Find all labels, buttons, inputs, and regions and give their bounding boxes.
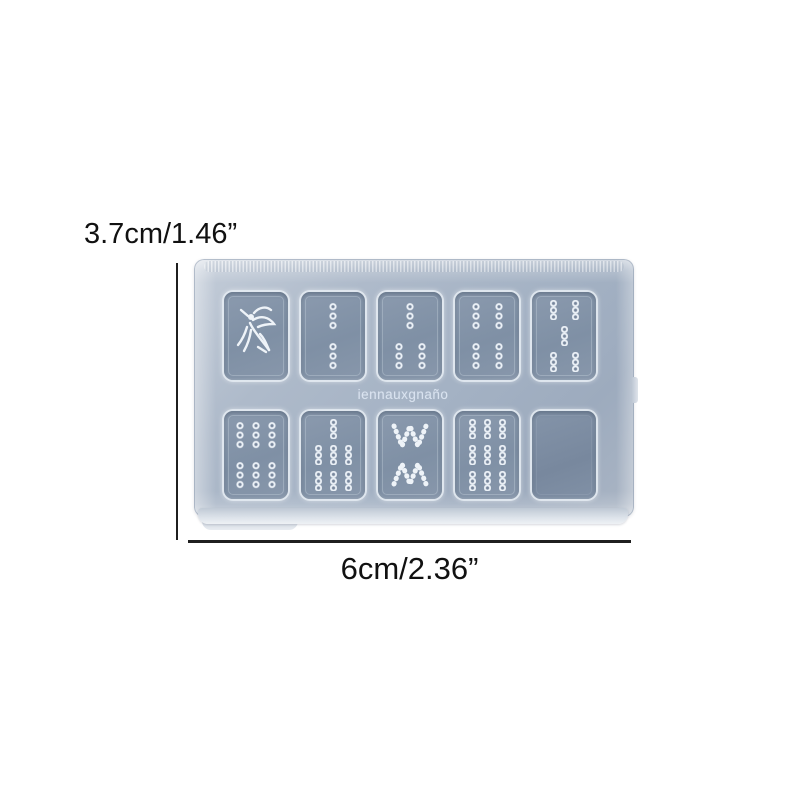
bamboo-stick (236, 421, 244, 449)
bamboo-stick (236, 461, 244, 489)
bamboo-stick-pattern (395, 302, 426, 370)
mold-cavity-7-bamboo (301, 411, 365, 499)
height-dimension-line (176, 263, 178, 540)
mold-foot (202, 518, 298, 530)
mold-cavity-6-bamboo (224, 411, 288, 499)
bamboo-stick (469, 471, 476, 491)
bamboo-stick-pattern (472, 302, 503, 370)
bamboo-stick (469, 419, 476, 439)
mold-cavity-5-bamboo (532, 292, 596, 380)
bamboo-stick (572, 300, 579, 320)
mold-cavity-3-bamboo (378, 292, 442, 380)
bamboo-stick (472, 302, 480, 330)
bamboo-stick (330, 445, 337, 465)
bamboo-stick (330, 471, 337, 491)
height-dimension-label: 3.7cm/1.46” (84, 218, 237, 251)
bamboo-stick (330, 419, 337, 439)
product-image: 3.7cm/1.46” iennauxgnaño 6cm/2.36” (0, 0, 800, 800)
bamboo-stick (484, 445, 491, 465)
bamboo-stick (572, 352, 579, 372)
mold-cavity-row-bottom (224, 411, 596, 499)
mold-cavity-2-bamboo (301, 292, 365, 380)
bamboo-stick (550, 352, 557, 372)
bamboo-stick (561, 326, 568, 346)
mold-cavity-row-top (224, 292, 596, 380)
bamboo-stick-pattern (550, 300, 579, 372)
bamboo-stick (469, 445, 476, 465)
watermark-text: iennauxgnaño (183, 387, 623, 402)
sparrow-bird-icon (233, 303, 279, 369)
mold-cavity-9-bamboo (455, 411, 519, 499)
bamboo-stick (495, 342, 503, 370)
bamboo-stick (395, 342, 403, 370)
width-dimension-label: 6cm/2.36” (188, 551, 631, 587)
bamboo-stick (499, 419, 506, 439)
bamboo-stick-pattern (236, 421, 276, 489)
bamboo-stick (315, 445, 322, 465)
bamboo-stick (499, 445, 506, 465)
eight-bamboo-chevrons-icon (389, 421, 431, 489)
bamboo-stick (406, 302, 414, 330)
mold-cavity-blank-tile (532, 411, 596, 499)
bamboo-stick (484, 471, 491, 491)
bamboo-stick (252, 461, 260, 489)
bamboo-stick (484, 419, 491, 439)
bamboo-stick (268, 461, 276, 489)
bamboo-stick (268, 421, 276, 449)
bamboo-stick (315, 471, 322, 491)
bamboo-stick (472, 342, 480, 370)
bamboo-stick (329, 302, 337, 330)
mold-cavity-8-bamboo (378, 411, 442, 499)
bamboo-stick-pattern (315, 419, 352, 491)
bamboo-stick (495, 302, 503, 330)
width-dimension-line (188, 540, 631, 543)
mold-edge-bump (631, 377, 638, 403)
silicone-mold: iennauxgnaño (194, 259, 634, 517)
mold-cavity-4-bamboo (455, 292, 519, 380)
bamboo-stick (329, 342, 337, 370)
bamboo-stick-pattern (469, 419, 506, 491)
bamboo-stick (345, 471, 352, 491)
bamboo-stick (252, 421, 260, 449)
bamboo-stick-pattern (329, 302, 337, 370)
bamboo-stick (345, 445, 352, 465)
bamboo-stick (550, 300, 557, 320)
bamboo-stick (418, 342, 426, 370)
bamboo-stick (499, 471, 506, 491)
mold-cavity-1-bamboo-bird (224, 292, 288, 380)
